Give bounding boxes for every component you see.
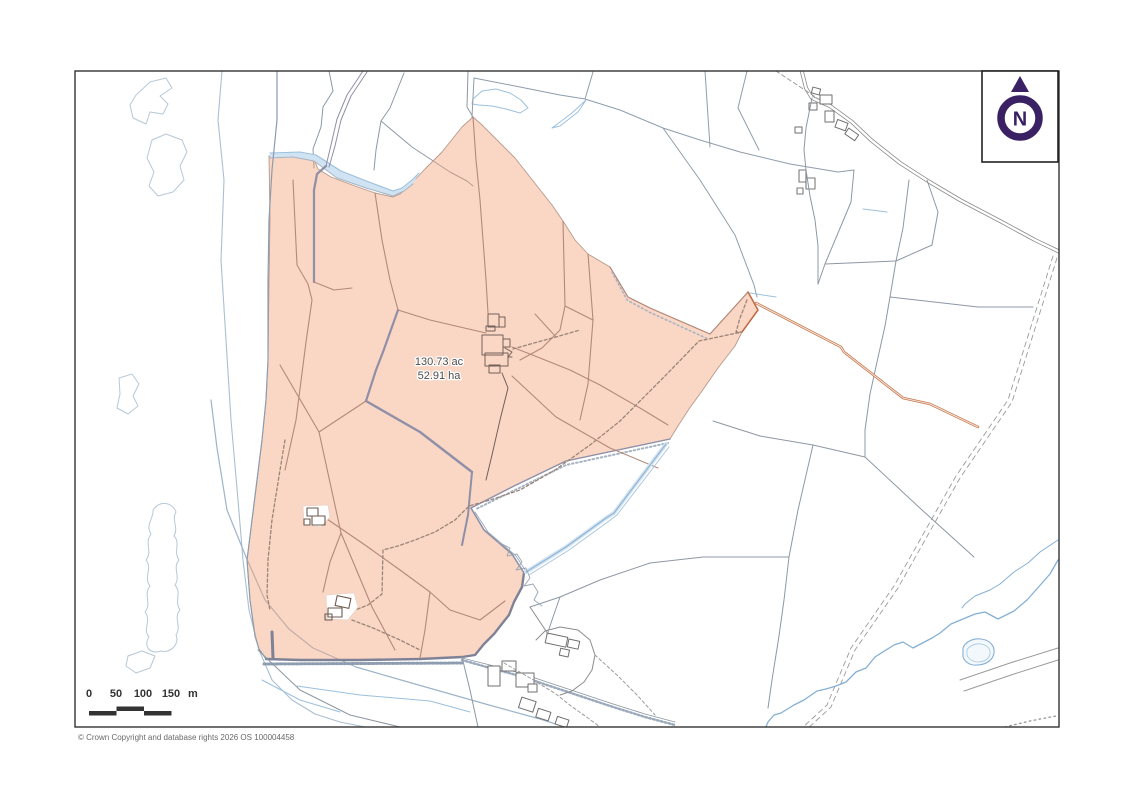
svg-text:100: 100 [134, 688, 152, 700]
svg-text:50: 50 [110, 688, 122, 700]
svg-text:N: N [1013, 109, 1027, 131]
svg-text:m: m [188, 688, 198, 700]
svg-text:© Crown Copyright and database: © Crown Copyright and database rights 20… [78, 733, 295, 742]
svg-text:130.73 ac: 130.73 ac [415, 356, 464, 368]
svg-text:52.91 ha: 52.91 ha [418, 370, 462, 382]
svg-text:150: 150 [162, 688, 180, 700]
svg-text:0: 0 [86, 688, 92, 700]
